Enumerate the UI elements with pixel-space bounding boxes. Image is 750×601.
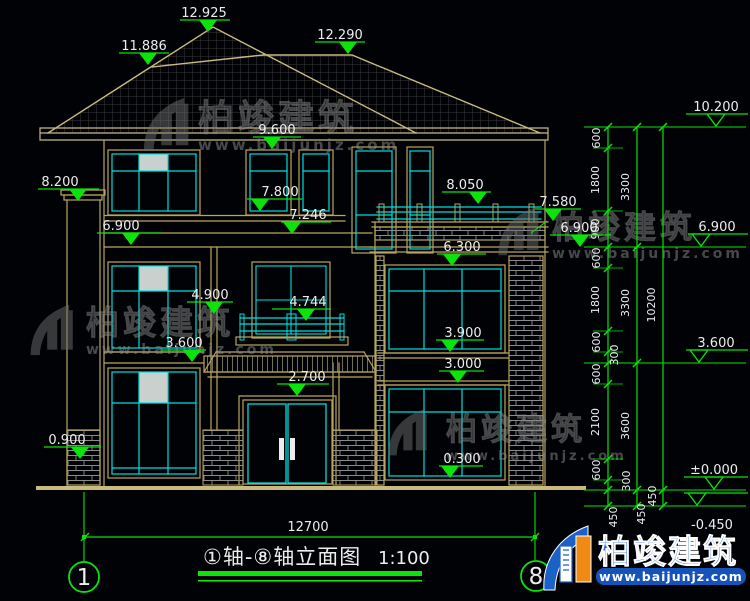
- window: [246, 150, 291, 215]
- level-value: 8.200: [41, 175, 78, 190]
- watermark-url: www.baijunjz.com: [198, 136, 399, 154]
- glass-highlight: [139, 266, 168, 291]
- drawing-title: ①轴-⑧轴立面图: [203, 545, 361, 569]
- window: [299, 150, 333, 215]
- level-value: 12.925: [181, 6, 227, 21]
- dim-value-3300: 3300: [619, 173, 632, 201]
- level-marker-8.050: 8.050: [442, 178, 491, 204]
- level-value: 7.246: [289, 208, 326, 223]
- level-marker-3.600: 3.600: [161, 336, 206, 362]
- drawing-title-block: ①轴-⑧轴立面图 1:100: [198, 545, 430, 582]
- door-handle: [290, 438, 295, 460]
- dim-value-600: 600: [590, 460, 603, 481]
- ground-line: [36, 486, 586, 490]
- dim-value-600: 600: [590, 128, 603, 149]
- level-value: 7.580: [539, 195, 576, 210]
- glass-highlight: [139, 154, 168, 171]
- level-marker-12.290: 12.290: [315, 28, 365, 54]
- title-underline-thick: [198, 571, 422, 576]
- level-value: 12.290: [317, 28, 363, 43]
- level-value: 0.300: [443, 452, 480, 467]
- level-value: 3.600: [697, 336, 734, 351]
- level-value: 6.900: [560, 221, 597, 236]
- level-marker-3.900: 3.900: [436, 326, 484, 352]
- level-value: 9.600: [258, 123, 295, 138]
- level-marker-4.744: 4.744: [272, 295, 331, 321]
- level-value: 8.050: [446, 178, 483, 193]
- brand-name: 柏竣建筑: [598, 532, 738, 571]
- dim-value-1800: 1800: [589, 286, 602, 314]
- dim-value-600: 600: [590, 248, 603, 269]
- dim-value-600: 600: [590, 332, 603, 353]
- level-marker-0.300: 0.300: [439, 452, 483, 478]
- level-value: ±0.000: [690, 463, 738, 478]
- cad-elevation-screenshot: 柏竣建筑www.baijunjz.com柏竣建筑www.baijunjz.com…: [0, 0, 750, 601]
- dim-value-3300: 3300: [619, 289, 632, 317]
- axis-label-1: 1: [77, 565, 92, 591]
- brand-logo: 柏竣建筑 www.baijunjz.com: [544, 526, 746, 590]
- level-value: 3.000: [444, 357, 481, 372]
- level-marker-2.700: 2.700: [277, 370, 329, 396]
- title-underline-thin: [198, 580, 422, 582]
- dim-value-300: 300: [620, 471, 633, 492]
- level-value: 6.900: [698, 220, 735, 235]
- level-marker-±0.000: ±0.000: [684, 463, 748, 489]
- drawing-scale: 1:100: [378, 548, 430, 569]
- level-value: 4.900: [191, 288, 228, 303]
- level-marker-6.900: 6.900: [688, 220, 748, 246]
- level-marker-7.246: 7.246: [281, 208, 331, 234]
- glass-highlight: [139, 372, 168, 403]
- window: [108, 150, 200, 215]
- dimension-labels: 6001800900600180060030060021006003004503…: [589, 128, 659, 528]
- level-value: 3.900: [444, 326, 481, 341]
- level-marker-10.200: 10.200: [686, 100, 748, 126]
- brand-url: www.baijunjz.com: [599, 569, 743, 584]
- dim-value-450: 450: [607, 507, 620, 528]
- entrance-door: [239, 396, 336, 484]
- axis-label-8: 8: [529, 564, 544, 590]
- level-marker--0.450: -0.450: [684, 493, 748, 533]
- brand-logo-icon: [544, 526, 591, 590]
- watermark-name: 柏竣建筑: [446, 412, 586, 448]
- level-value: 0.900: [48, 433, 85, 448]
- door-handle: [279, 438, 284, 460]
- level-marker-6.900: 6.900: [97, 219, 161, 245]
- dimension-chains: [584, 123, 746, 510]
- watermark-logo-icon: [31, 305, 73, 355]
- watermark-logo-icon: [388, 410, 426, 456]
- level-value: 7.800: [261, 185, 298, 200]
- dim-value-300: 300: [608, 345, 621, 366]
- level-marker-12.925: 12.925: [180, 6, 230, 32]
- level-marker-3.600: 3.600: [686, 336, 748, 362]
- watermarks: 柏竣建筑www.baijunjz.com柏竣建筑www.baijunjz.com…: [31, 98, 743, 464]
- level-value: 11.886: [121, 39, 167, 54]
- level-value: 4.744: [289, 295, 326, 310]
- level-value: 6.900: [102, 219, 139, 234]
- elevation-canvas: 柏竣建筑www.baijunjz.com柏竣建筑www.baijunjz.com…: [0, 0, 750, 601]
- dim-value-450: 450: [646, 486, 659, 507]
- level-marker-3.000: 3.000: [439, 357, 484, 383]
- window: [108, 368, 200, 478]
- level-value: 6.300: [443, 240, 480, 255]
- level-value: 2.700: [288, 370, 325, 385]
- dim-value-3600: 3600: [619, 412, 632, 440]
- dim-value-2100: 2100: [589, 408, 602, 436]
- level-value: 10.200: [693, 100, 739, 115]
- level-value: -0.450: [691, 518, 733, 533]
- level-marker-6.300: 6.300: [437, 240, 486, 266]
- level-value: 3.600: [165, 336, 202, 351]
- dim-value-600: 600: [590, 364, 603, 385]
- watermark-url: www.baijunjz.com: [552, 246, 743, 262]
- level-marker-8.200: 8.200: [38, 175, 99, 201]
- dim-value-1800: 1800: [589, 166, 602, 194]
- dim-value-10200: 10200: [645, 288, 658, 323]
- overall-width-dim: 12700: [287, 520, 328, 535]
